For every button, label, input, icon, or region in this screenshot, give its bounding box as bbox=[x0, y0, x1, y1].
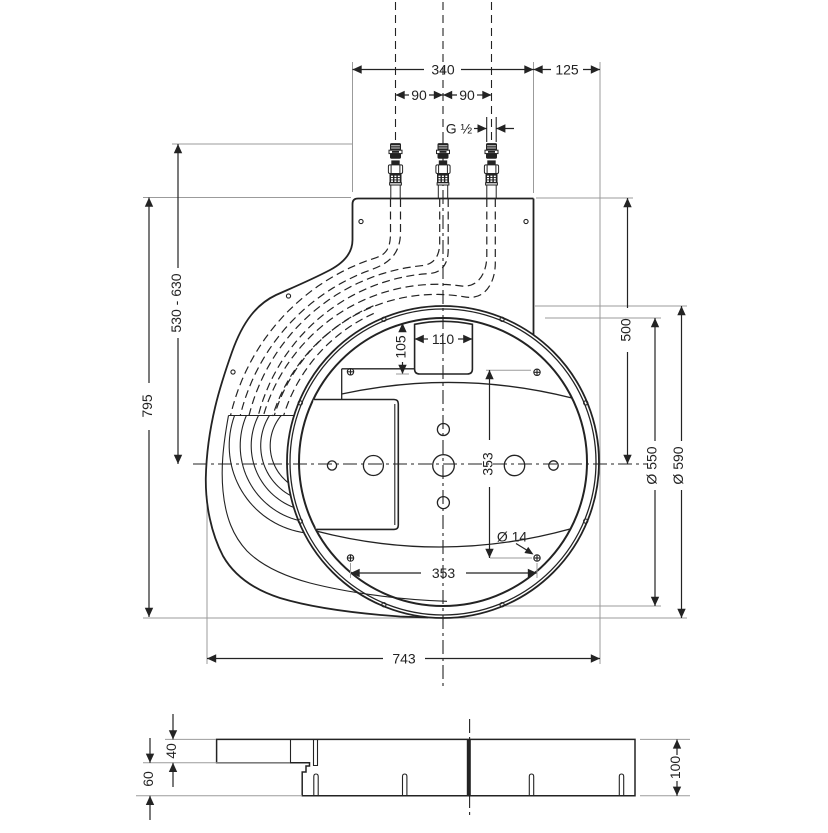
svg-text:353: 353 bbox=[432, 565, 456, 581]
svg-text:530 - 630: 530 - 630 bbox=[168, 273, 184, 332]
svg-text:500: 500 bbox=[618, 318, 634, 342]
svg-text:60: 60 bbox=[140, 771, 156, 787]
svg-text:340: 340 bbox=[431, 62, 455, 78]
svg-text:795: 795 bbox=[139, 394, 155, 418]
svg-text:Ø 550: Ø 550 bbox=[644, 446, 660, 484]
svg-text:743: 743 bbox=[392, 651, 416, 667]
svg-text:Ø 590: Ø 590 bbox=[670, 446, 686, 484]
svg-text:90: 90 bbox=[411, 87, 427, 103]
svg-text:353: 353 bbox=[480, 452, 496, 476]
svg-text:110: 110 bbox=[432, 331, 455, 347]
svg-text:105: 105 bbox=[393, 335, 409, 359]
svg-text:G ½: G ½ bbox=[446, 121, 473, 137]
svg-text:90: 90 bbox=[459, 87, 475, 103]
svg-text:40: 40 bbox=[163, 743, 179, 759]
svg-text:Ø 14: Ø 14 bbox=[497, 529, 528, 545]
svg-text:100: 100 bbox=[667, 756, 683, 780]
svg-text:125: 125 bbox=[555, 62, 579, 78]
